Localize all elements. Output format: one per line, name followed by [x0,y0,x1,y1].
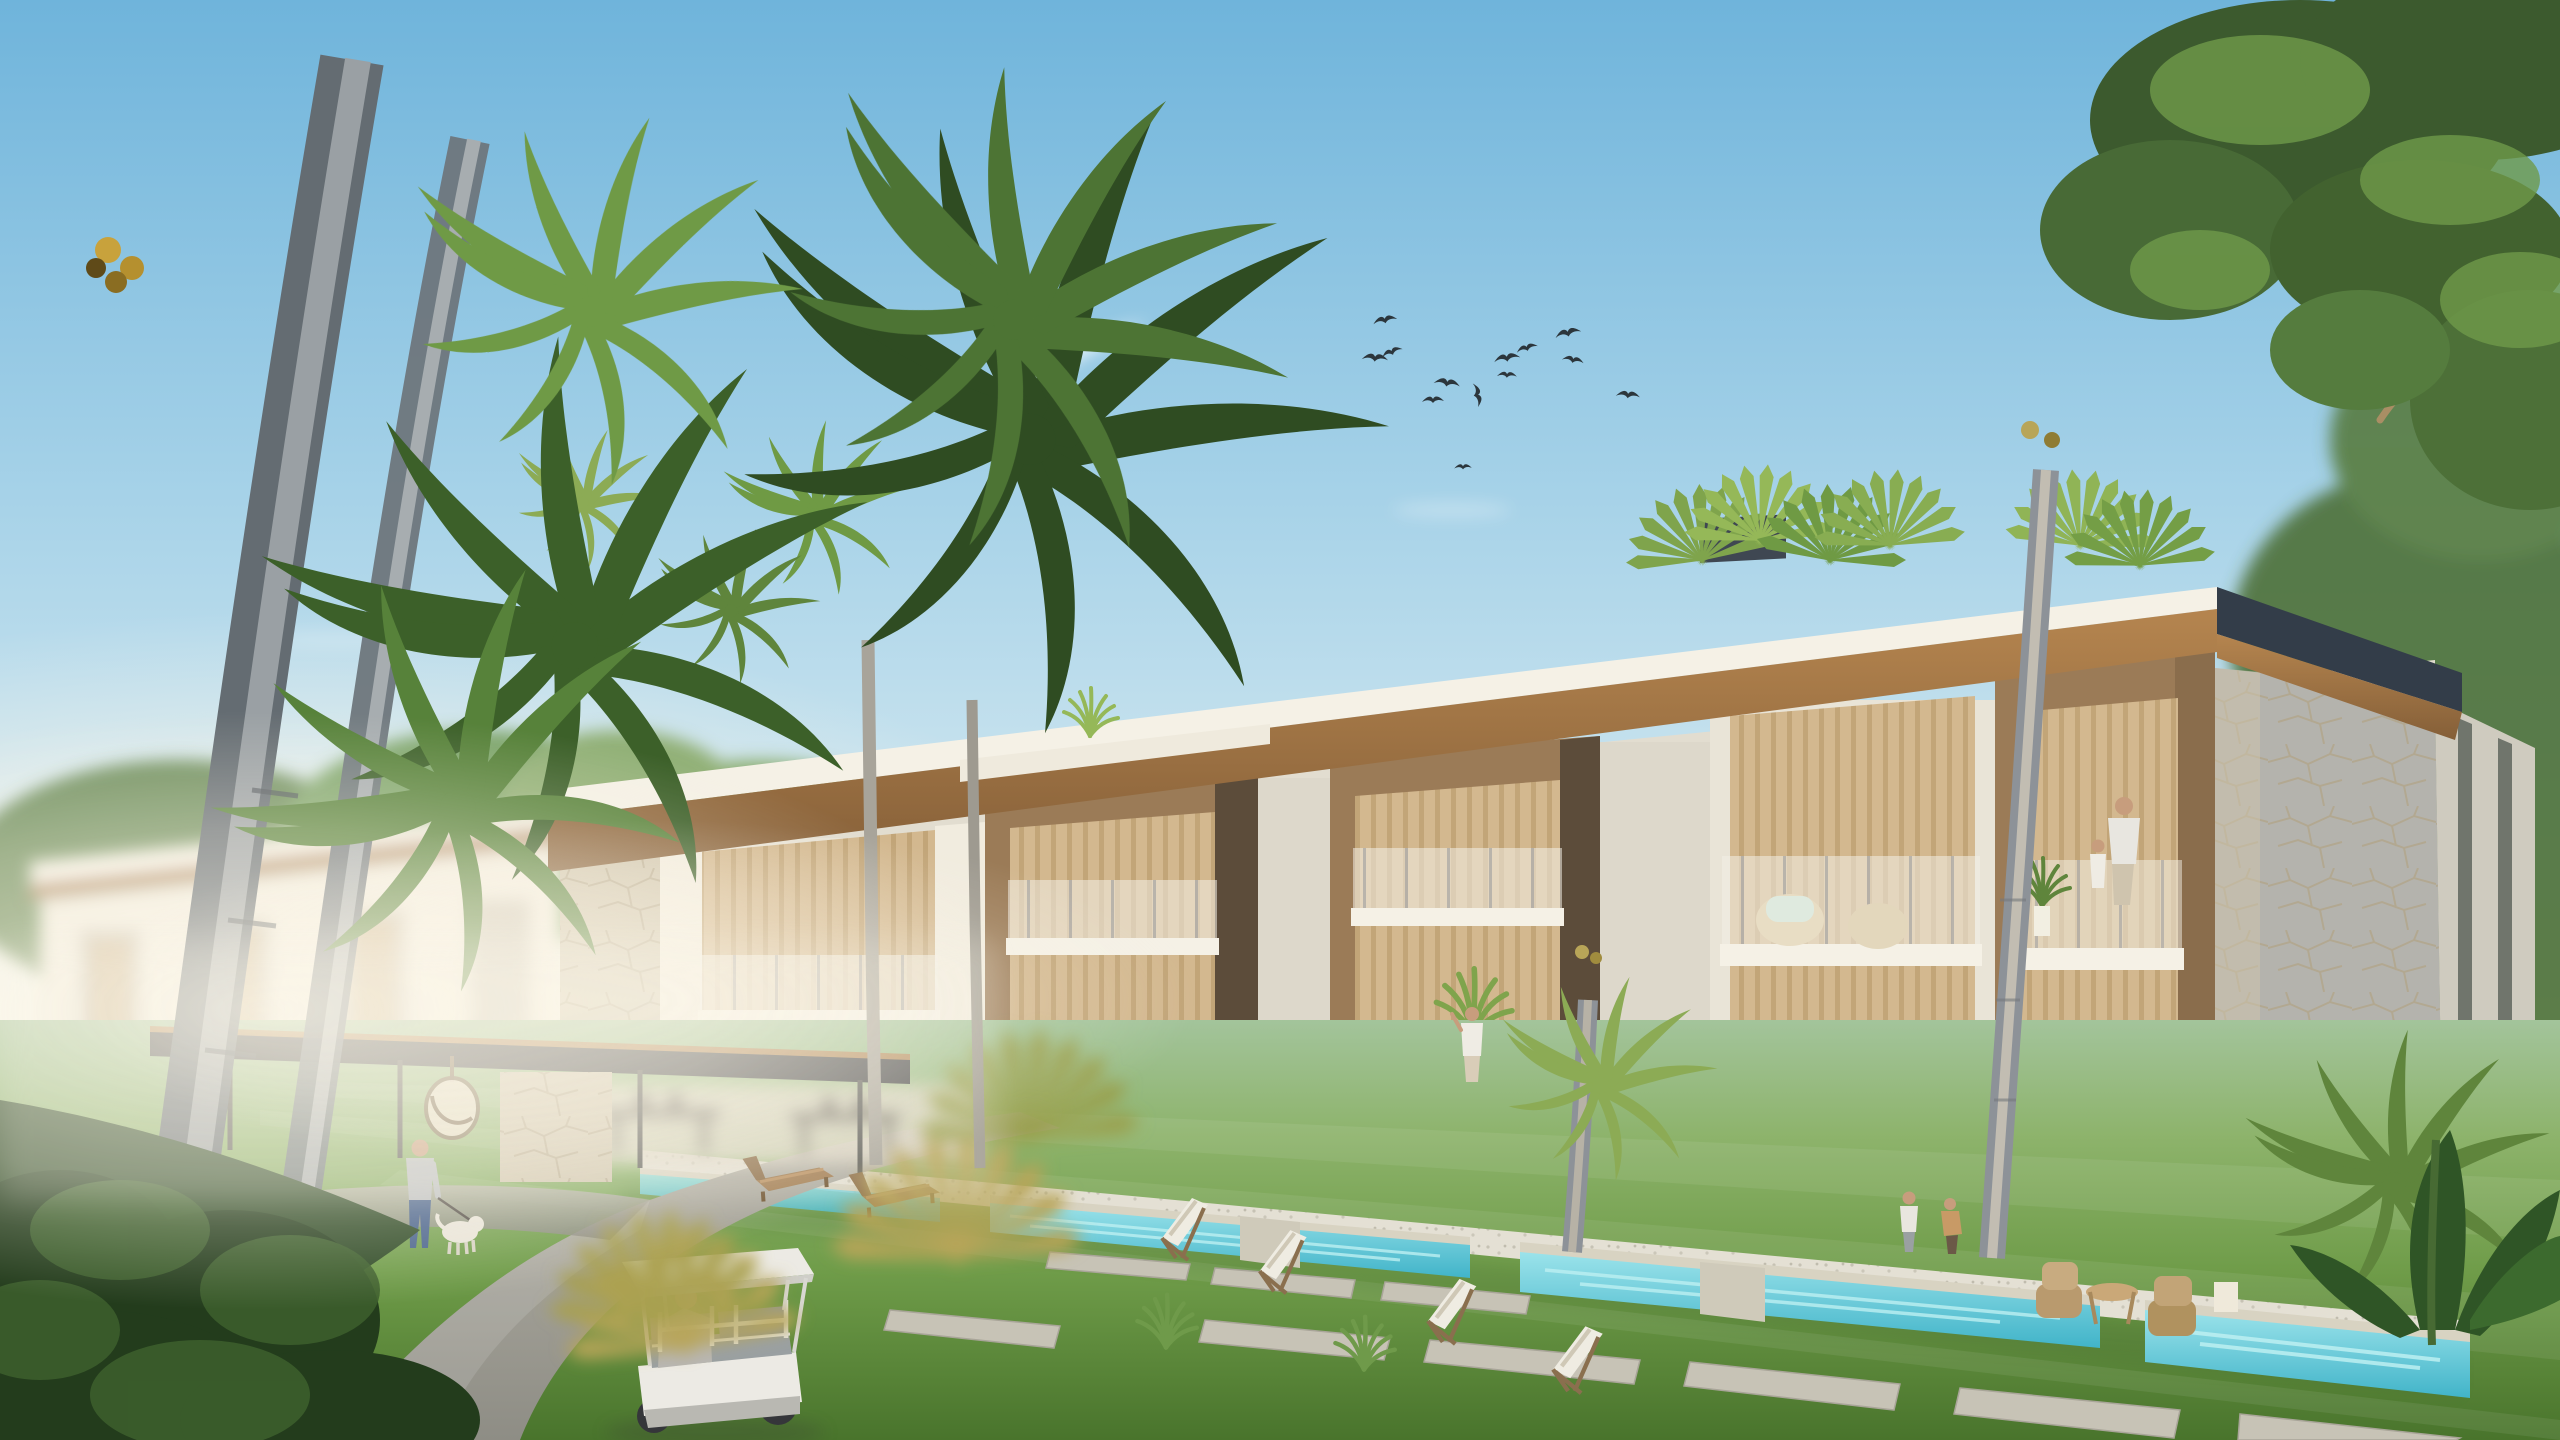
rattan-chair [2148,1276,2196,1336]
balcony-child [2090,840,2106,889]
rattan-chair [2036,1262,2082,1318]
pool-crossing-slab [1700,1262,1765,1322]
resort-rendering [0,0,2560,1440]
